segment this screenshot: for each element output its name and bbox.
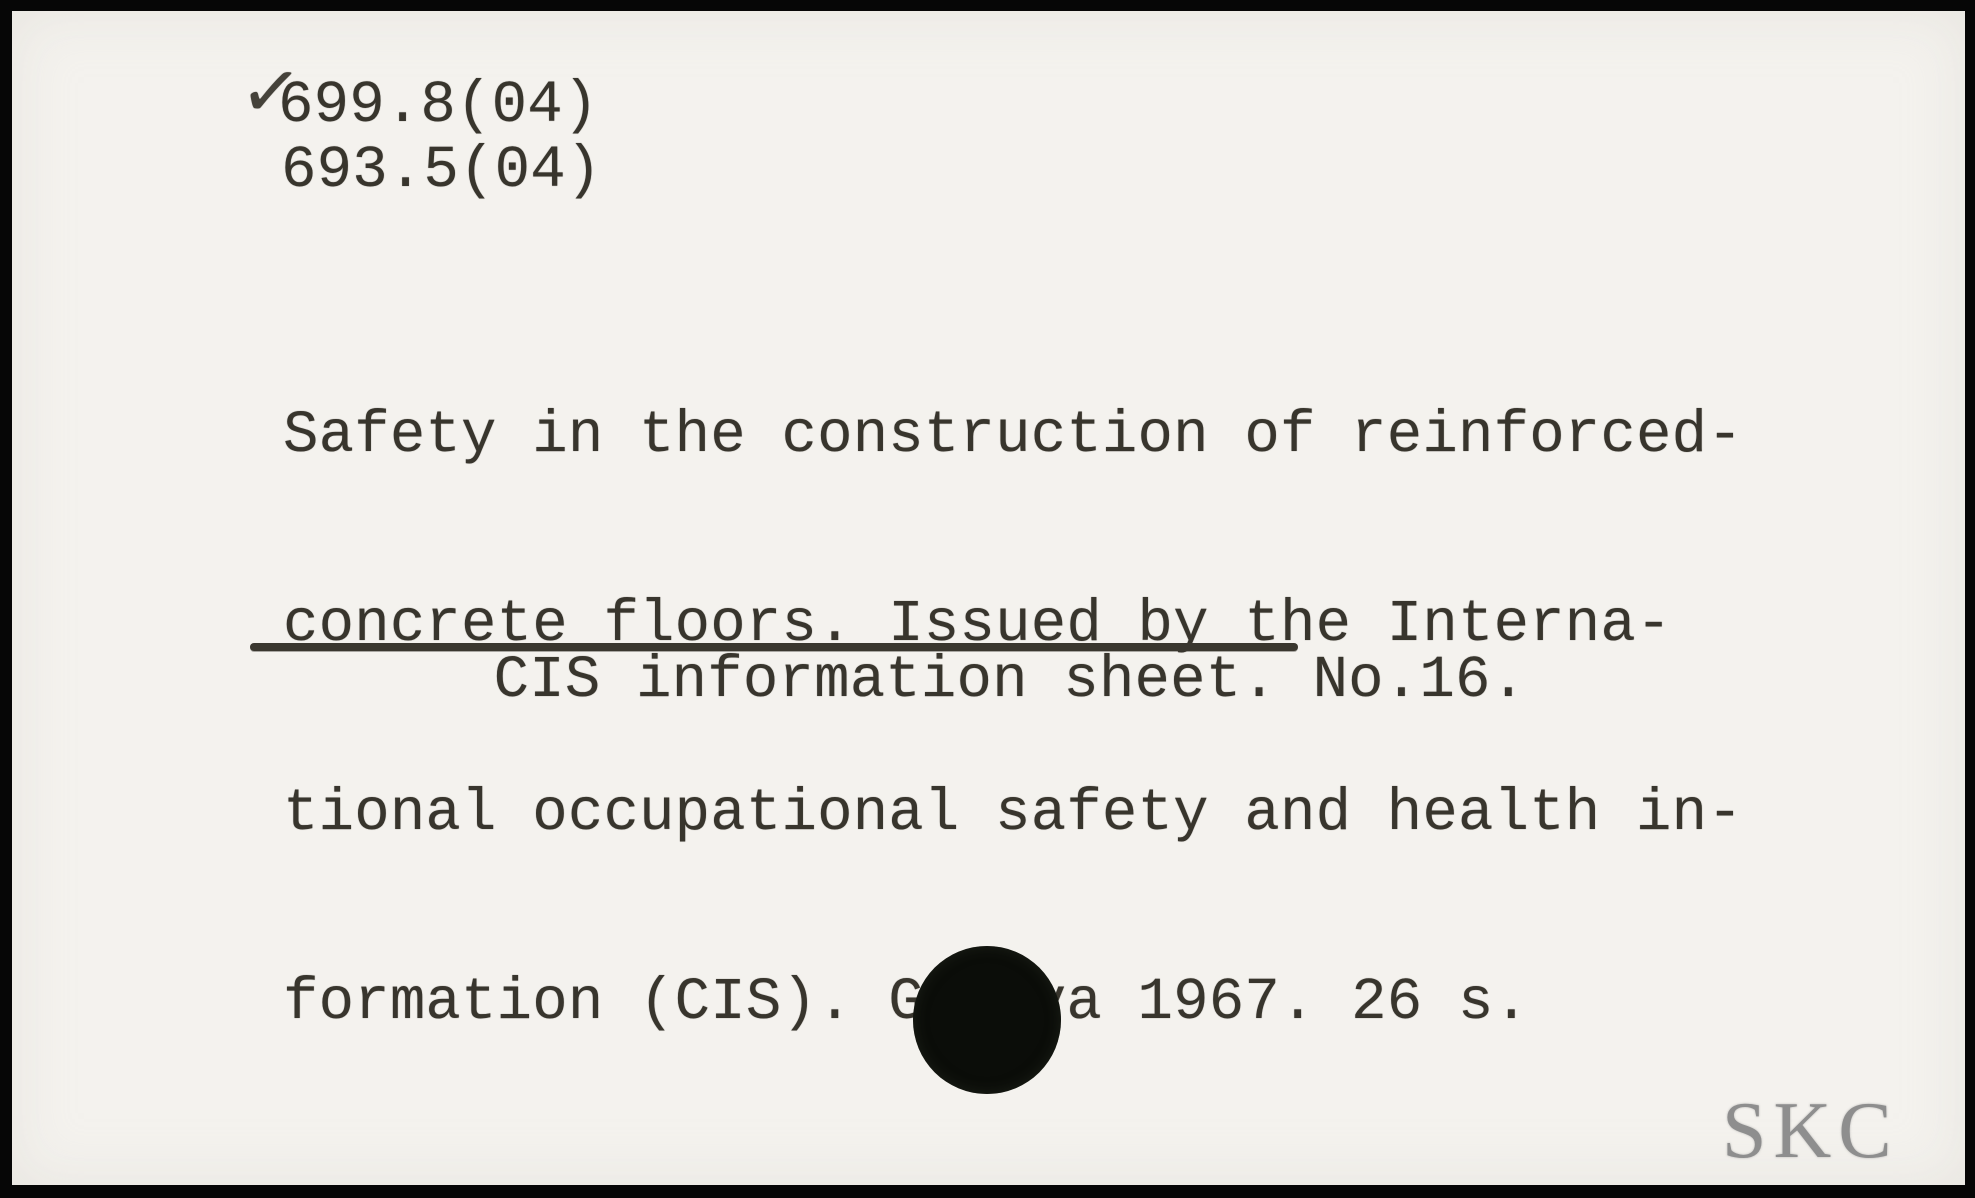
library-stamp: SKC (1722, 1090, 1899, 1172)
classification-code-secondary: 693.5(04) (281, 139, 601, 202)
punch-hole (913, 946, 1061, 1094)
series-title: CIS information sheet. No.16. (280, 586, 1526, 775)
body-line: tional occupational safety and health in… (283, 782, 1743, 845)
body-line: Safety in the construction of reinforced… (283, 404, 1743, 467)
series-title-underlined-text: CIS information sheet. No.16 (494, 647, 1491, 714)
classification-code-primary: 699.8(04) (278, 74, 598, 137)
series-title-trailing-period: . (1491, 647, 1527, 714)
series-underline-rule (250, 643, 1298, 651)
catalog-card: ✓ 699.8(04) 693.5(04) Safety in the cons… (12, 11, 1965, 1185)
scan-background: ✓ 699.8(04) 693.5(04) Safety in the cons… (0, 0, 1975, 1198)
